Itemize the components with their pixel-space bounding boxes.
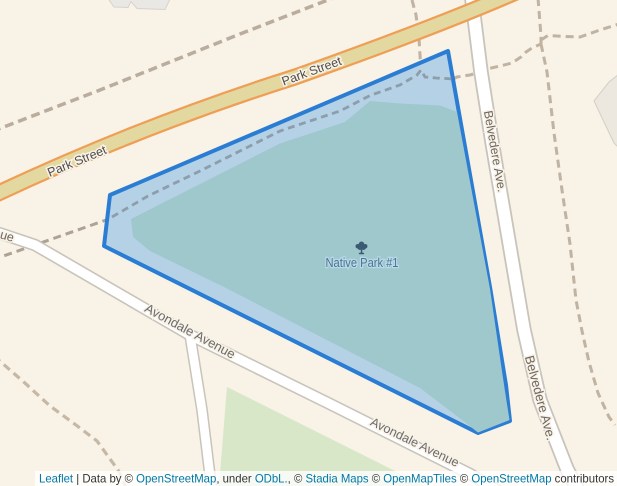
svg-text:Leaflet | Data by © OpenStreet: Leaflet | Data by © OpenStreetMap, under…: [39, 472, 614, 486]
svg-text:Native Park #1: Native Park #1: [326, 256, 399, 270]
